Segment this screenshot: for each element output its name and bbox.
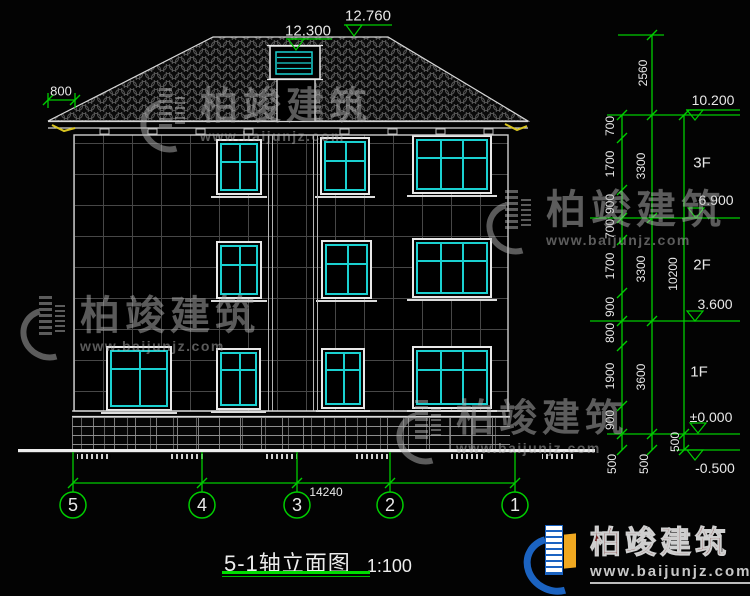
title-underline-thick xyxy=(222,571,370,574)
dim-middle-3300b: 3300 xyxy=(635,256,647,283)
dim-outer-10200: 10200 xyxy=(667,257,679,290)
dim-inner-700b: 700 xyxy=(604,219,616,239)
footer-brand-logo xyxy=(522,523,588,589)
axis-number-2: 2 xyxy=(385,496,395,514)
dim-inner-900b: 900 xyxy=(604,297,616,317)
cad-linework-layer xyxy=(0,0,750,596)
footer-brand-url: www.baijunjz.com xyxy=(590,563,750,584)
gutter-mark-right xyxy=(505,124,527,130)
ground-line xyxy=(18,449,595,452)
level-mark-zero: ±0.000 xyxy=(690,410,733,424)
dim-inner-700a: 700 xyxy=(604,116,616,136)
dim-inner-900c: 900 xyxy=(604,410,616,430)
footer-brand-name: 柏竣建筑 xyxy=(590,526,750,560)
floor-tag-3f: 3F xyxy=(693,156,711,171)
footing-hatches xyxy=(77,454,576,459)
dim-eave-overhang: 800 xyxy=(50,85,72,98)
level-mark-3600: 3.600 xyxy=(697,297,732,311)
level-mark-6900: 6.900 xyxy=(698,193,733,207)
title-underline-thin xyxy=(222,576,370,577)
logo-building-orange xyxy=(564,533,576,568)
floor-tag-2f: 2F xyxy=(693,258,711,273)
eave-modillions xyxy=(100,129,493,134)
dim-inner-1700a: 1700 xyxy=(604,151,616,178)
footer-brand-block: 柏竣建筑 www.baijunjz.com xyxy=(590,526,750,584)
elevation-drawing-canvas: 12.300 12.760 800 700 1700 900 700 1700 … xyxy=(0,0,750,596)
elevation-label-dormer-top: 12.300 xyxy=(285,24,331,39)
dim-inner-1700b: 1700 xyxy=(604,253,616,280)
dim-total-width: 14240 xyxy=(309,486,342,498)
drawing-scale: 1:100 xyxy=(367,556,412,577)
dim-inner-1900: 1900 xyxy=(604,363,616,390)
logo-building-blue xyxy=(545,525,563,575)
level-mark-minus500: -0.500 xyxy=(695,461,735,475)
axis-number-3: 3 xyxy=(292,496,302,514)
eave-fascia-lines xyxy=(48,122,528,129)
dim-inner-500: 500 xyxy=(606,454,618,474)
elevation-label-ridge-top: 12.760 xyxy=(345,9,391,24)
axis-number-4: 4 xyxy=(197,496,207,514)
wall-outline xyxy=(74,135,508,411)
chimney-shaft xyxy=(277,79,315,121)
dim-middle-2560: 2560 xyxy=(637,60,649,87)
axis-number-5: 5 xyxy=(68,496,78,514)
plinth-belt-lines xyxy=(72,411,510,417)
floor-tag-1f: 1F xyxy=(690,365,708,380)
level-mark-10200: 10.200 xyxy=(692,93,735,107)
dim-inner-800: 800 xyxy=(604,323,616,343)
dim-inner-900a: 900 xyxy=(604,194,616,214)
axis-number-1: 1 xyxy=(510,496,520,514)
dim-outer-500: 500 xyxy=(669,432,681,452)
dim-middle-3300a: 3300 xyxy=(635,153,647,180)
dim-middle-3600: 3600 xyxy=(635,364,647,391)
facade-chimney-strips xyxy=(269,135,318,411)
dim-middle-500: 500 xyxy=(638,454,650,474)
